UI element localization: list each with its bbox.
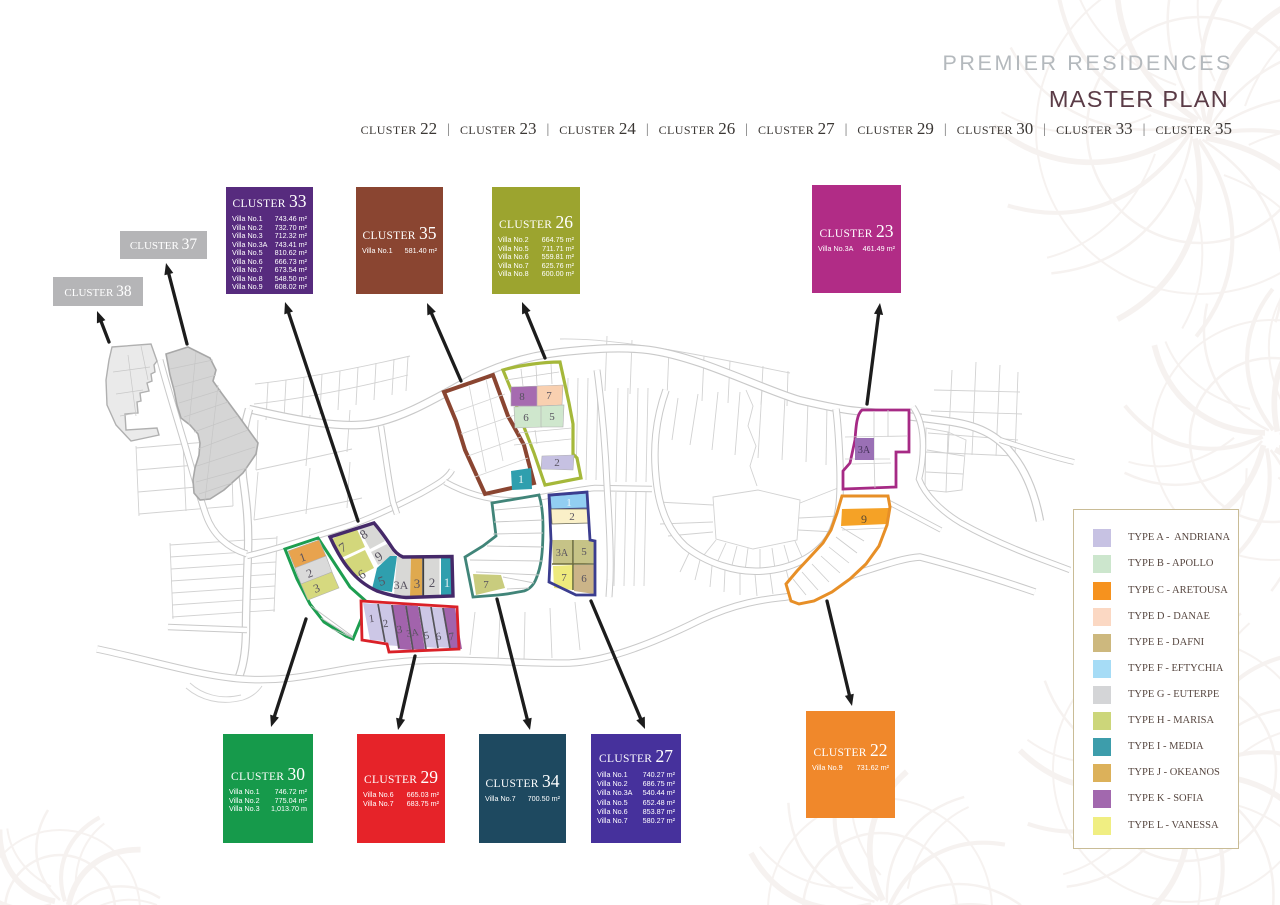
svg-text:1: 1 [518, 472, 524, 486]
svg-text:3A: 3A [406, 627, 420, 640]
svg-text:3: 3 [414, 576, 421, 591]
svg-text:2: 2 [554, 457, 560, 469]
svg-text:5: 5 [549, 411, 555, 423]
svg-text:2: 2 [429, 575, 436, 590]
svg-text:5: 5 [581, 546, 587, 558]
svg-text:7: 7 [561, 572, 567, 584]
svg-text:3A: 3A [556, 548, 569, 559]
svg-text:3A: 3A [394, 578, 409, 592]
svg-text:7: 7 [546, 390, 552, 402]
svg-text:6: 6 [581, 573, 587, 585]
svg-text:7: 7 [483, 579, 489, 591]
svg-text:1: 1 [566, 497, 572, 509]
svg-text:9: 9 [861, 512, 867, 526]
svg-text:6: 6 [523, 412, 529, 424]
svg-text:3A: 3A [858, 445, 871, 456]
svg-text:8: 8 [519, 391, 525, 403]
svg-text:1: 1 [444, 575, 451, 590]
svg-text:2: 2 [569, 511, 575, 523]
